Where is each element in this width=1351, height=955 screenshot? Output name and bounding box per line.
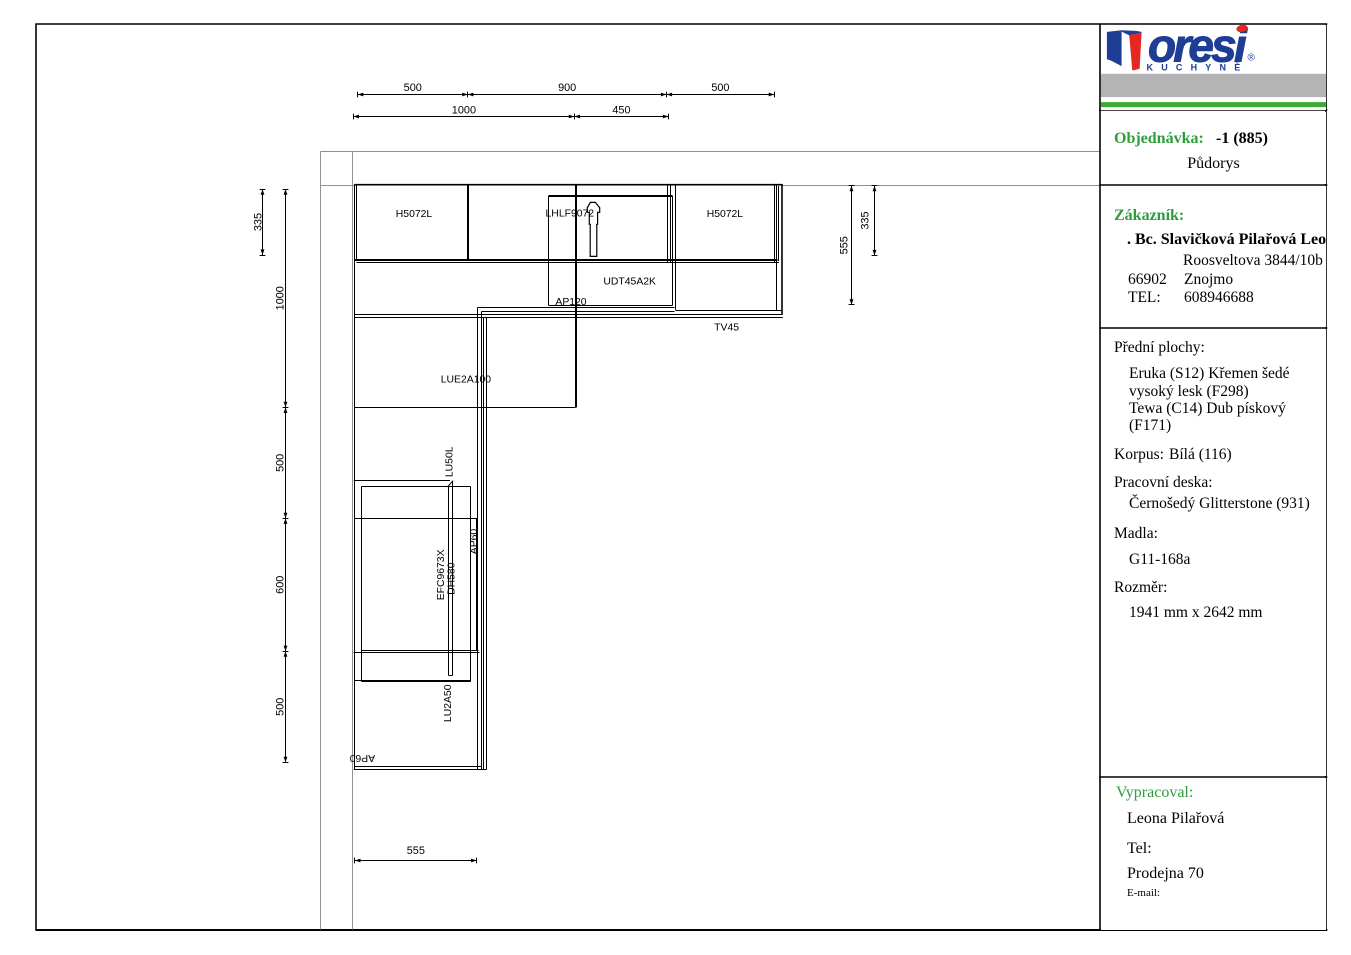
svg-text:555: 555: [407, 845, 425, 857]
svg-text:DH580: DH580: [446, 562, 457, 595]
svg-text:UDT45A2K: UDT45A2K: [603, 277, 656, 288]
svg-text:500: 500: [274, 698, 286, 716]
svg-text:AP60: AP60: [349, 752, 375, 763]
svg-text:LHLF9072: LHLF9072: [546, 209, 595, 220]
svg-text:1000: 1000: [274, 286, 286, 310]
svg-text:LUE2A100: LUE2A100: [441, 374, 491, 385]
svg-text:1000: 1000: [452, 105, 476, 117]
svg-text:335: 335: [252, 213, 264, 231]
svg-text:H5072L: H5072L: [396, 209, 433, 220]
svg-text:®: ®: [1248, 53, 1256, 64]
svg-text:900: 900: [558, 82, 576, 94]
svg-text:600: 600: [274, 576, 286, 594]
svg-text:555: 555: [838, 236, 850, 254]
svg-text:AP120: AP120: [555, 297, 586, 308]
svg-text:H5072L: H5072L: [707, 209, 744, 220]
svg-text:500: 500: [274, 454, 286, 472]
svg-text:500: 500: [404, 82, 422, 94]
svg-text:EFC9673X: EFC9673X: [436, 549, 447, 600]
svg-text:KUCHYNĚ: KUCHYNĚ: [1147, 61, 1249, 72]
svg-text:450: 450: [612, 105, 630, 117]
svg-text:500: 500: [711, 82, 729, 94]
svg-text:335: 335: [860, 211, 872, 229]
svg-text:TV45: TV45: [714, 323, 739, 334]
svg-text:LU50L: LU50L: [445, 446, 456, 477]
svg-text:LU2A50: LU2A50: [443, 684, 454, 722]
svg-text:AP60: AP60: [469, 529, 480, 555]
